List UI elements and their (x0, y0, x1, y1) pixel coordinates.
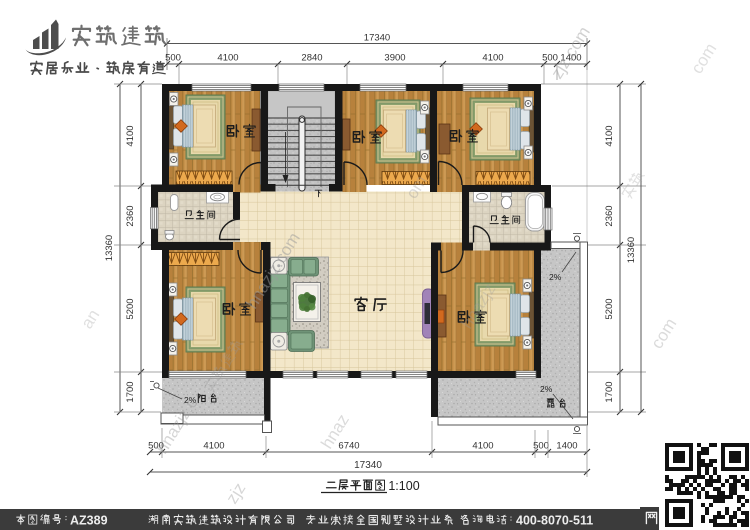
svg-text:17340: 17340 (364, 33, 390, 44)
svg-text:2%: 2% (540, 384, 553, 394)
svg-text:1700: 1700 (604, 381, 615, 402)
svg-text:6740: 6740 (338, 441, 359, 452)
svg-text:1700: 1700 (125, 381, 136, 402)
svg-text:5200: 5200 (125, 298, 136, 319)
svg-text:2%: 2% (549, 272, 562, 282)
svg-text:5200: 5200 (604, 298, 615, 319)
svg-text:2840: 2840 (301, 53, 322, 64)
svg-text:3900: 3900 (384, 53, 405, 64)
svg-text:4100: 4100 (203, 441, 224, 452)
svg-text:2360: 2360 (604, 205, 615, 226)
svg-text:4100: 4100 (482, 53, 503, 64)
svg-text:4100: 4100 (125, 125, 136, 146)
svg-text:13360: 13360 (626, 237, 637, 263)
svg-text:500: 500 (165, 53, 181, 64)
svg-text:1400: 1400 (556, 441, 577, 452)
svg-text:400-8070-511: 400-8070-511 (516, 514, 593, 528)
svg-text:1:100: 1:100 (388, 479, 419, 493)
svg-text:4100: 4100 (217, 53, 238, 64)
svg-text:17340: 17340 (354, 460, 382, 471)
svg-text:500: 500 (533, 441, 549, 452)
svg-text:4100: 4100 (604, 125, 615, 146)
svg-text:2360: 2360 (125, 205, 136, 226)
svg-text:4100: 4100 (472, 441, 493, 452)
svg-text:13360: 13360 (104, 235, 115, 261)
svg-text:AZ389: AZ389 (70, 514, 108, 528)
